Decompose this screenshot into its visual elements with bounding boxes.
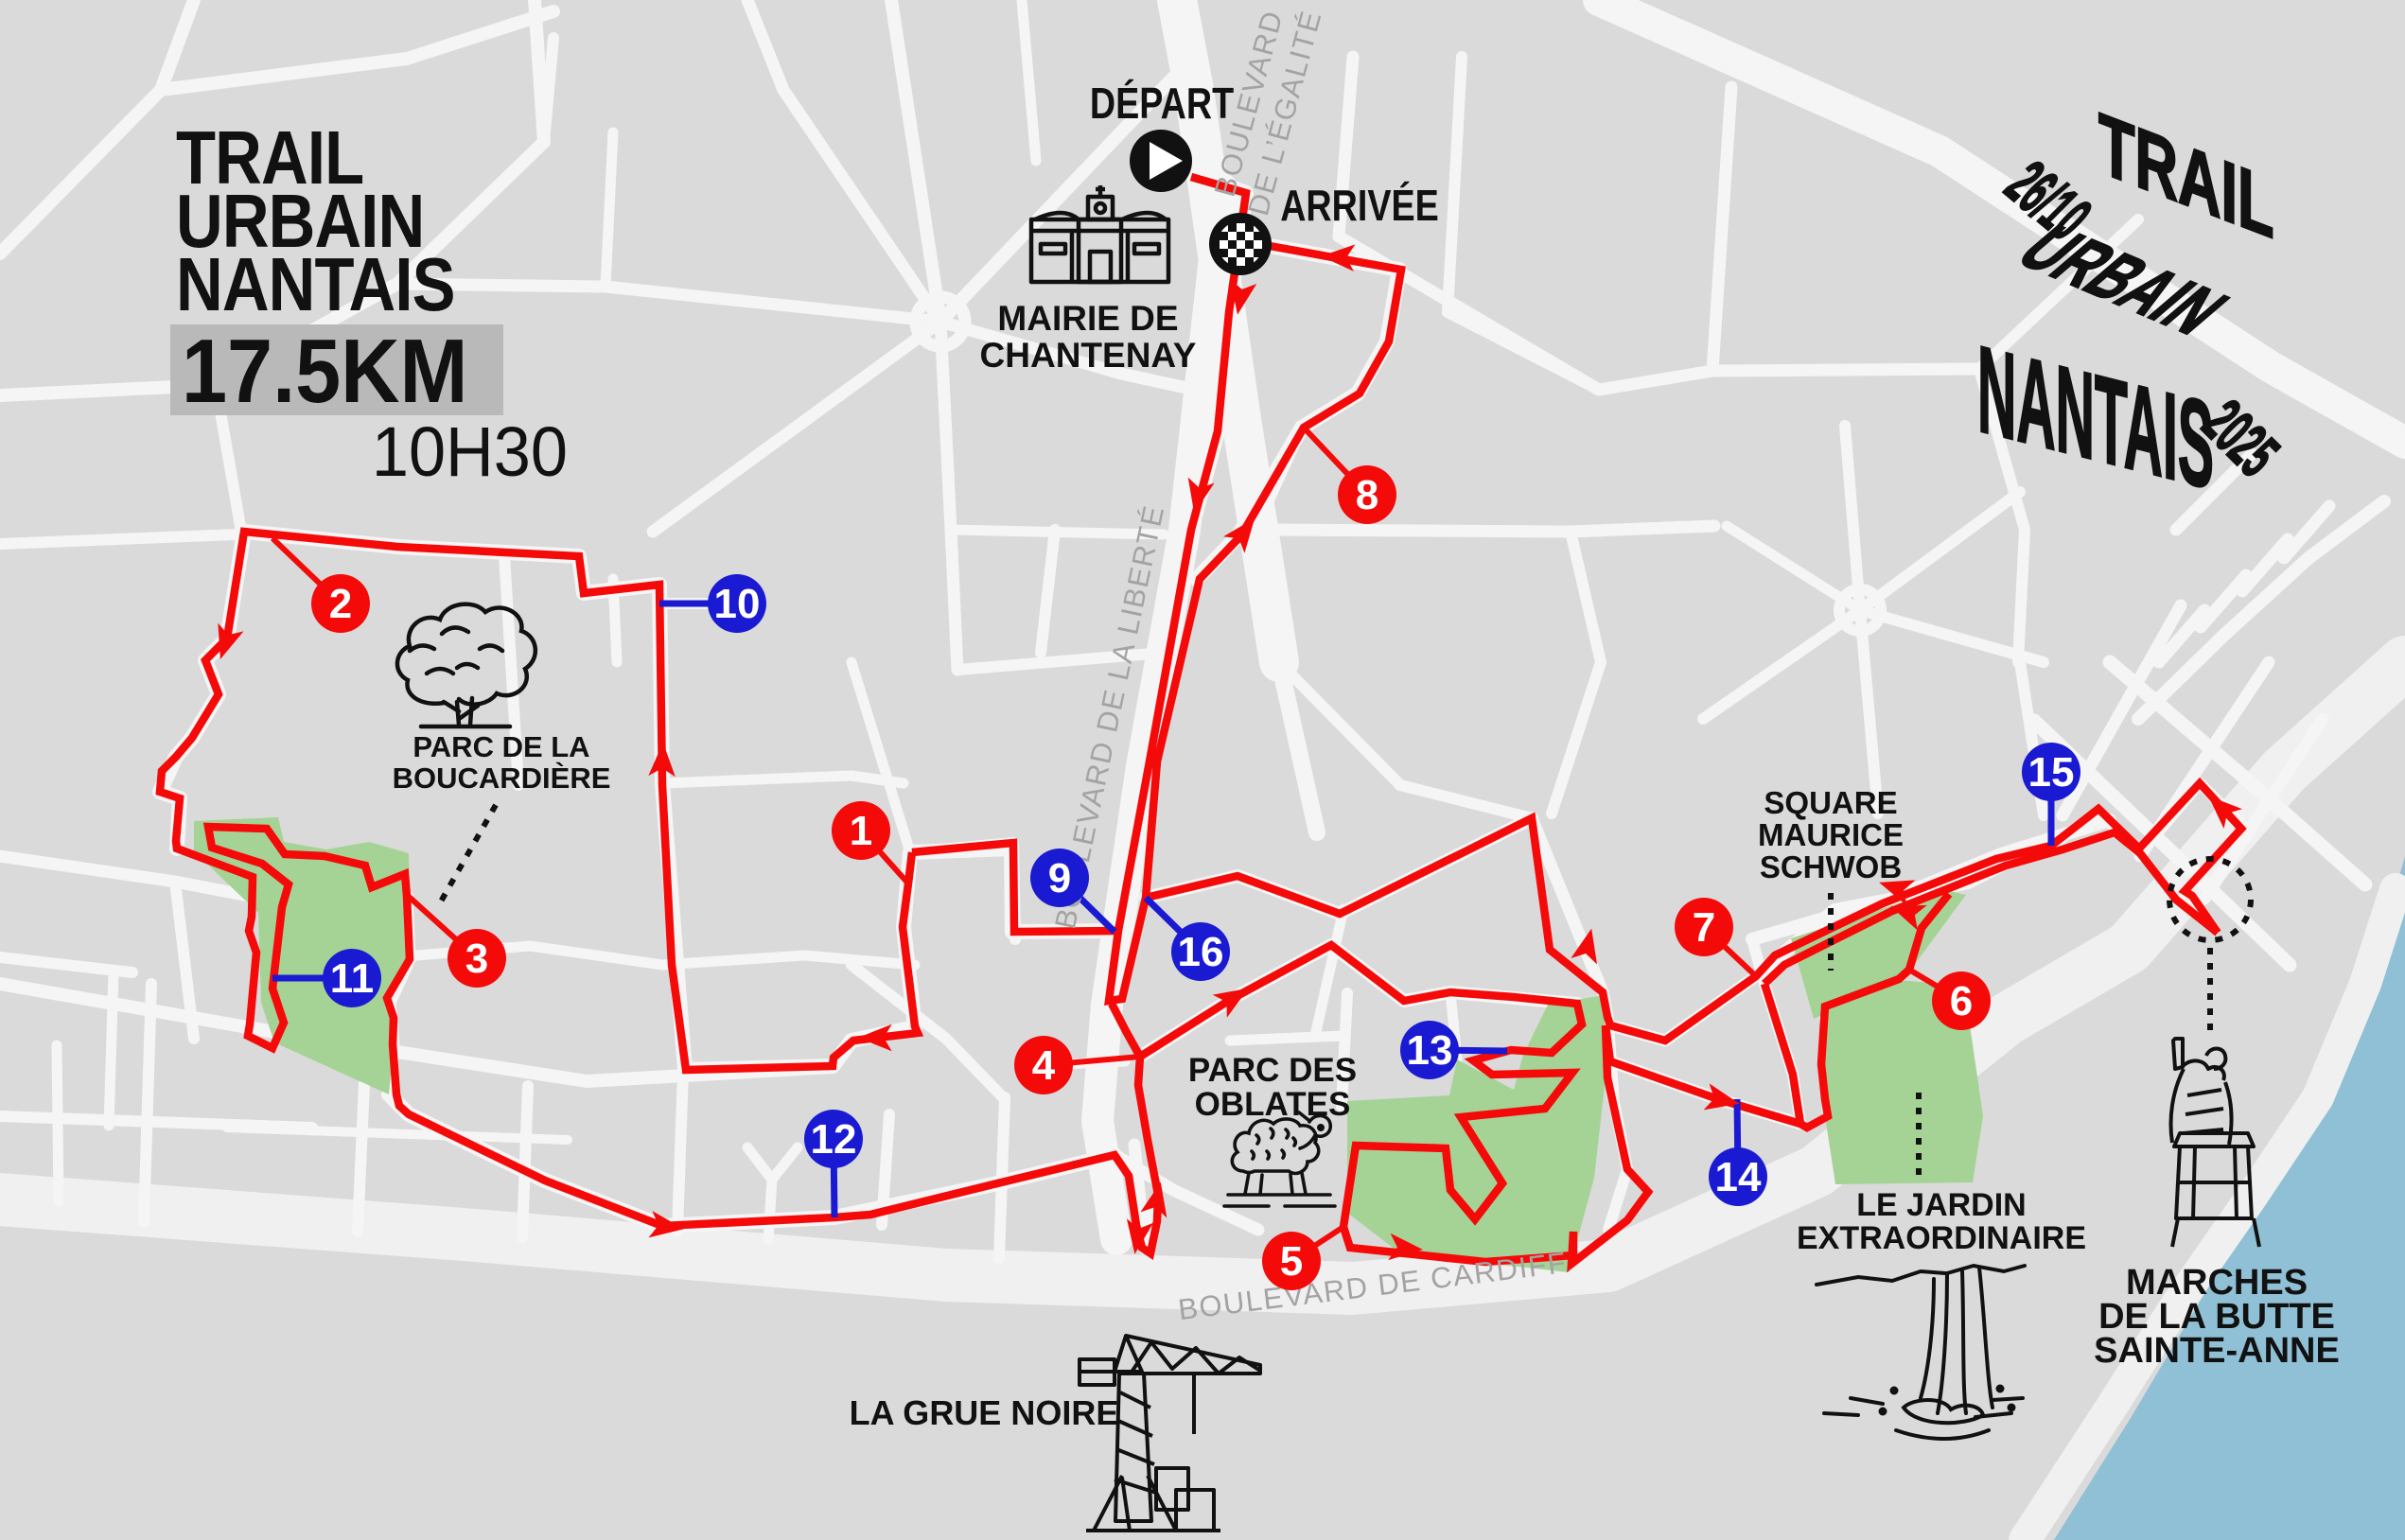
svg-text:DÉPART: DÉPART — [1090, 79, 1234, 127]
svg-text:13: 13 — [1407, 1027, 1453, 1074]
svg-text:12: 12 — [811, 1116, 857, 1163]
svg-text:10H30: 10H30 — [372, 413, 568, 491]
svg-text:10: 10 — [714, 581, 761, 627]
svg-text:1: 1 — [850, 808, 872, 854]
svg-text:LA GRUE NOIRE: LA GRUE NOIRE — [850, 1393, 1119, 1432]
svg-text:ARRIVÉE: ARRIVÉE — [1280, 181, 1439, 229]
svg-text:PARC DES: PARC DES — [1188, 1052, 1357, 1089]
svg-text:5: 5 — [1280, 1238, 1303, 1285]
svg-text:MAIRIE DE: MAIRIE DE — [997, 299, 1178, 338]
svg-text:15: 15 — [2028, 749, 2075, 796]
svg-text:SAINTE-ANNE: SAINTE-ANNE — [2094, 1331, 2340, 1371]
svg-text:6: 6 — [1950, 978, 1973, 1024]
svg-text:11: 11 — [330, 955, 375, 1002]
svg-text:8: 8 — [1356, 472, 1378, 518]
svg-text:16: 16 — [1178, 929, 1224, 975]
svg-text:NANTAIS: NANTAIS — [176, 241, 455, 326]
svg-text:PARC DE LA: PARC DE LA — [413, 730, 589, 763]
svg-text:BOUCARDIÈRE: BOUCARDIÈRE — [393, 761, 611, 795]
svg-text:7: 7 — [1693, 904, 1715, 951]
svg-text:MAURICE: MAURICE — [1758, 817, 1904, 852]
svg-text:3: 3 — [465, 936, 488, 982]
svg-text:SQUARE: SQUARE — [1764, 785, 1897, 820]
svg-text:4: 4 — [1032, 1042, 1056, 1089]
svg-text:EXTRAORDINAIRE: EXTRAORDINAIRE — [1797, 1220, 2086, 1256]
svg-text:2: 2 — [329, 581, 352, 627]
svg-text:CHANTENAY: CHANTENAY — [980, 336, 1197, 375]
svg-text:17.5KM: 17.5KM — [182, 321, 467, 422]
svg-text:SCHWOB: SCHWOB — [1760, 849, 1902, 884]
svg-text:LE JARDIN: LE JARDIN — [1856, 1187, 2026, 1223]
svg-text:9: 9 — [1048, 855, 1071, 901]
svg-text:14: 14 — [1715, 1154, 1762, 1200]
